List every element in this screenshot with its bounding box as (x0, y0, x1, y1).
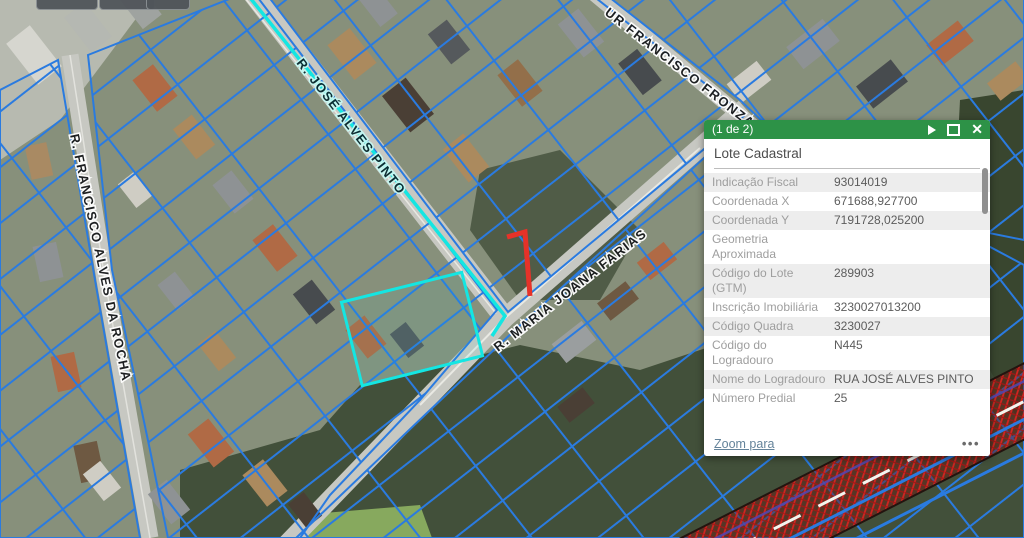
field-row: Nome do Logradouro RUA JOSÉ ALVES PINTO (704, 370, 990, 389)
field-row: Coordenada Y 7191728,025200 (704, 211, 990, 230)
field-row: Número Predial 25 (704, 389, 990, 408)
feature-popup: (1 de 2) ✕ Lote Cadastral Indicação Fisc… (704, 120, 990, 456)
toolbar-button-remnant[interactable] (146, 0, 190, 10)
field-label: Número Predial (712, 391, 834, 406)
field-row: Inscrição Imobiliária 3230027013200 (704, 298, 990, 317)
maximize-icon (947, 124, 960, 136)
field-label: Indicação Fiscal (712, 175, 834, 190)
field-label: Geometria Aproximada (712, 232, 834, 262)
field-label: Código do Lote (GTM) (712, 266, 834, 296)
field-row: Indicação Fiscal 93014019 (704, 173, 990, 192)
field-row: Geometria Aproximada (704, 230, 990, 264)
toolbar-button-remnant[interactable] (36, 0, 98, 10)
field-value: 3230027 (834, 319, 982, 334)
field-label: Código do Logradouro (712, 338, 834, 368)
field-row: Coordenada X 671688,927700 (704, 192, 990, 211)
popup-pager: (1 de 2) (712, 120, 753, 139)
popup-scrollbar-thumb[interactable] (982, 168, 988, 214)
play-icon (928, 125, 936, 135)
popup-field-list: Indicação Fiscal 93014019 Coordenada X 6… (704, 173, 990, 435)
next-feature-button[interactable] (928, 123, 936, 136)
field-row: Código do Lote (GTM) 289903 (704, 264, 990, 298)
close-button[interactable]: ✕ (971, 123, 983, 136)
zoom-to-link[interactable]: Zoom para (714, 437, 774, 451)
field-value (834, 232, 982, 262)
popup-divider (714, 168, 980, 169)
field-label: Inscrição Imobiliária (712, 300, 834, 315)
field-label: Coordenada Y (712, 213, 834, 228)
close-icon: ✕ (971, 123, 983, 136)
more-options-button[interactable]: ••• (962, 439, 980, 449)
field-value: 3230027013200 (834, 300, 982, 315)
field-value: N445 (834, 338, 982, 368)
maximize-button[interactable] (947, 123, 960, 136)
field-value: 93014019 (834, 175, 982, 190)
field-row: Código do Logradouro N445 (704, 336, 990, 370)
field-value: RUA JOSÉ ALVES PINTO (834, 372, 982, 387)
popup-header[interactable]: (1 de 2) ✕ (704, 120, 990, 139)
field-row: Código Quadra 3230027 (704, 317, 990, 336)
field-label: Nome do Logradouro (712, 372, 834, 387)
popup-footer: Zoom para ••• (704, 432, 990, 456)
field-value: 25 (834, 391, 982, 406)
field-label: Coordenada X (712, 194, 834, 209)
field-value: 671688,927700 (834, 194, 982, 209)
popup-title: Lote Cadastral (704, 139, 990, 165)
field-label: Código Quadra (712, 319, 834, 334)
field-value: 289903 (834, 266, 982, 296)
field-value: 7191728,025200 (834, 213, 982, 228)
